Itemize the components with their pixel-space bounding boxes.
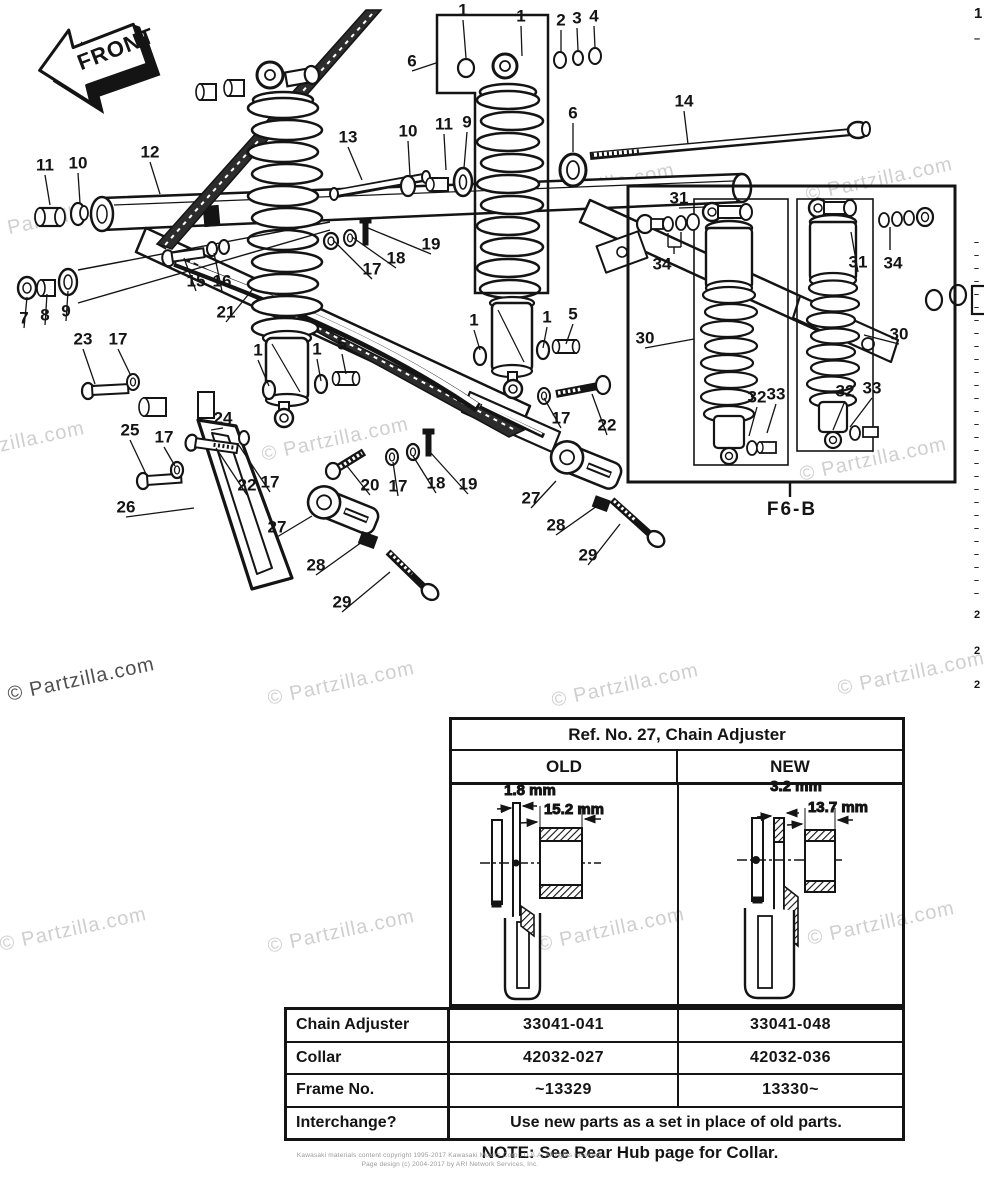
ref-table-lower: Chain Adjuster 33041-041 33041-048 Colla… [284, 1007, 905, 1141]
edge-fragment: – [974, 238, 979, 247]
edge-fragment: – [974, 589, 979, 598]
leader-line [767, 404, 776, 433]
edge-fragment: – [974, 524, 979, 533]
figure-cells [452, 785, 902, 1004]
column-divider [677, 785, 679, 1004]
row-label-frame-no: Frame No. [287, 1075, 450, 1106]
collar-new-part: 42032-036 [679, 1043, 902, 1074]
leader-line [126, 508, 194, 517]
part-callout-15: 15 [187, 271, 206, 290]
part-callout-30: 30 [636, 328, 655, 347]
part-callout-17: 17 [363, 259, 382, 278]
leader-line [684, 111, 688, 144]
part-callout-18: 18 [387, 248, 406, 267]
table-row: Frame No. ~13329 13330~ [287, 1075, 902, 1108]
edge-fragment: – [974, 576, 979, 585]
collar-old-part: 42032-027 [450, 1043, 679, 1074]
part-callout-29: 29 [333, 592, 352, 611]
part-callout-19: 19 [422, 234, 441, 253]
edge-fragment: – [974, 277, 979, 286]
part-callout-27: 27 [268, 517, 287, 536]
edge-fragment: – [974, 498, 979, 507]
part-callout-28: 28 [307, 555, 326, 574]
part-callout-17: 17 [155, 427, 174, 446]
part-callout-25: 25 [121, 420, 140, 439]
leader-line [118, 349, 131, 376]
part-callout-33: 33 [863, 378, 882, 397]
edge-fragment: – [974, 420, 979, 429]
leader-line [130, 440, 146, 474]
edge-fragment: – [974, 394, 979, 403]
part-callout-1: 1 [458, 0, 467, 19]
part-callout-17: 17 [552, 408, 571, 427]
row-label-chain-adjuster: Chain Adjuster [287, 1010, 450, 1041]
edge-fragment: – [974, 355, 979, 364]
part-callout-17: 17 [389, 476, 408, 495]
part-callout-1: 1 [469, 310, 478, 329]
leader-line [150, 162, 160, 194]
edge-fragment: – [974, 446, 979, 455]
part-callout-6: 6 [568, 103, 577, 122]
edge-fragment: – [974, 251, 979, 260]
part-callout-9: 9 [462, 112, 471, 131]
edge-fragment: – [974, 485, 979, 494]
edge-fragment: – [974, 511, 979, 520]
frame-no-old: ~13329 [450, 1075, 679, 1106]
edge-fragment: – [974, 550, 979, 559]
table-row: Chain Adjuster 33041-041 33041-048 [287, 1010, 902, 1043]
leader-line [444, 134, 446, 170]
part-callout-20: 20 [361, 475, 380, 494]
part-callout-13: 13 [339, 127, 358, 146]
part-callout-22: 22 [598, 415, 617, 434]
parts-diagram-page: © Partzilla.com© Partzilla.com© Partzill… [0, 0, 984, 1200]
part-callout-9: 9 [61, 301, 70, 320]
column-header-old: OLD [452, 751, 678, 782]
part-callout-1: 1 [516, 6, 525, 25]
ref-table-upper: Ref. No. 27, Chain Adjuster OLD NEW [449, 717, 905, 1007]
footer-copyright-line2: Page design (c) 2004-2017 by ARI Network… [310, 1161, 590, 1168]
part-callout-27: 27 [522, 488, 541, 507]
part-callout-8: 8 [40, 305, 49, 324]
edge-fragment: – [974, 381, 979, 390]
part-callout-21: 21 [217, 302, 236, 321]
inset-right-shock [807, 199, 878, 448]
edge-fragment: – [974, 342, 979, 351]
part-callout-1: 1 [312, 339, 321, 358]
chain-adjuster-old-part: 33041-041 [450, 1010, 679, 1041]
edge-fragment: – [974, 329, 979, 338]
leader-line [464, 132, 467, 168]
leader-line [408, 141, 410, 176]
edge-fragment: 2 [974, 646, 980, 657]
edge-fragment: – [974, 537, 979, 546]
leader-line [45, 175, 50, 205]
part-callout-14: 14 [675, 91, 694, 110]
part-callout-32: 32 [836, 381, 855, 400]
edge-fragment: – [974, 368, 979, 377]
part-callout-18: 18 [427, 473, 446, 492]
leader-line [521, 26, 522, 56]
part-callout-10: 10 [399, 121, 418, 140]
part-callout-1: 1 [542, 307, 551, 326]
part-callout-31: 31 [670, 188, 689, 207]
leader-line [577, 28, 578, 50]
table-row: Collar 42032-027 42032-036 [287, 1043, 902, 1076]
inset-left-shock [701, 203, 776, 464]
part-callout-10: 10 [69, 153, 88, 172]
part-callout-34: 34 [884, 253, 903, 272]
part-callout-6: 6 [407, 51, 416, 70]
edge-fragment: – [974, 290, 979, 299]
part-callout-29: 29 [579, 545, 598, 564]
edge-fragment: – [974, 34, 980, 45]
part-callout-4: 4 [589, 6, 599, 25]
part-callout-12: 12 [141, 142, 160, 161]
part-callout-34: 34 [653, 254, 672, 273]
chain-adjuster-new-part: 33041-048 [679, 1010, 902, 1041]
row-label-interchange: Interchange? [287, 1108, 450, 1139]
part-callout-16: 16 [213, 271, 232, 290]
edge-fragment: 1 [974, 6, 982, 21]
edge-fragment: – [974, 316, 979, 325]
part-callout-32: 32 [748, 387, 767, 406]
interchange-instruction: Use new parts as a set in place of old p… [450, 1108, 902, 1139]
part-callout-23: 23 [74, 329, 93, 348]
part-callout-11: 11 [36, 155, 54, 174]
part-callout-17: 17 [261, 472, 280, 491]
front-direction-arrow: FRONT [32, 10, 171, 127]
part-callout-5: 5 [568, 304, 577, 323]
row-label-collar: Collar [287, 1043, 450, 1074]
edge-fragment: – [974, 472, 979, 481]
edge-fragment: – [974, 303, 979, 312]
bolt-14 [590, 122, 870, 156]
part-callout-1: 1 [253, 340, 262, 359]
part-callout-19: 19 [459, 474, 478, 493]
part-callout-2: 2 [556, 10, 565, 29]
part-callout-11: 11 [435, 114, 453, 133]
edge-fragment: 2 [974, 680, 980, 691]
inset-label: F6-B [767, 499, 817, 520]
leader-line [463, 20, 466, 58]
frame-no-new: 13330~ [679, 1075, 902, 1106]
edge-fragment: – [974, 459, 979, 468]
footer-copyright-line1: Kawasaki materials content copyright 199… [250, 1152, 650, 1159]
leader-line [348, 147, 362, 180]
part-callout-3: 3 [572, 8, 581, 27]
edge-fragment: 2 [974, 610, 980, 621]
column-header-new: NEW [678, 751, 902, 782]
part-callout-22: 22 [238, 475, 257, 494]
part-callout-28: 28 [547, 515, 566, 534]
part-callout-5: 5 [337, 334, 346, 353]
part-callout-7: 7 [19, 308, 28, 327]
edge-fragment: – [974, 264, 979, 273]
part-callout-30: 30 [890, 324, 909, 343]
part-callout-24: 24 [214, 408, 233, 427]
table-row: Interchange? Use new parts as a set in p… [287, 1108, 902, 1139]
leader-line [594, 26, 595, 48]
part-callout-33: 33 [767, 384, 786, 403]
edge-fragment: – [974, 563, 979, 572]
leader-line [83, 349, 95, 384]
part-callout-26: 26 [117, 497, 136, 516]
part-callout-31: 31 [849, 252, 868, 271]
table-title: Ref. No. 27, Chain Adjuster [452, 720, 902, 751]
leader-line [164, 447, 175, 466]
edge-fragment: – [974, 407, 979, 416]
edge-fragment: – [974, 433, 979, 442]
leader-line [78, 173, 80, 203]
part-callout-17: 17 [109, 329, 128, 348]
